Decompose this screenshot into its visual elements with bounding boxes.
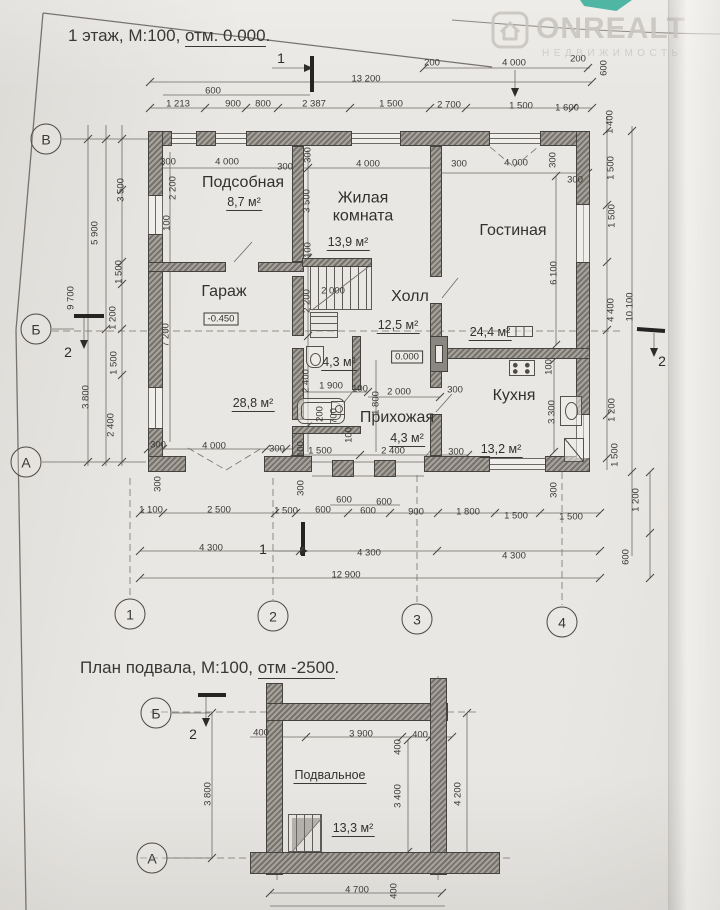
dim-label: 1 500 (379, 99, 403, 110)
window (352, 133, 400, 144)
dim-label: 600 (621, 549, 632, 565)
dim-label: 3 900 (349, 729, 373, 740)
dim-label: 2 200 (302, 289, 313, 313)
dim-label: 4 300 (199, 543, 223, 554)
window (216, 133, 246, 144)
basement-elevation-underlined: отм -2500 (258, 658, 335, 679)
wall-segment (148, 262, 226, 272)
dim-label: 600 (205, 86, 221, 97)
dim-label: 100 (303, 242, 314, 258)
dim-label: 4 000 (215, 157, 239, 168)
dim-label: 2 387 (302, 99, 326, 110)
dim-label: 1 800 (456, 507, 480, 518)
grid-column-circle: 3 (402, 604, 433, 635)
dim-label: 3 800 (81, 385, 92, 409)
wall-segment (302, 258, 372, 267)
dim-label: 2 000 (387, 387, 411, 398)
dim-label: 300 (448, 447, 464, 458)
wall-segment (374, 460, 396, 477)
wall-segment (246, 131, 352, 146)
room-area-label: 4,3 м² (321, 355, 357, 371)
dim-label: 1 200 (108, 306, 119, 330)
room-area-label: 4,3 м² (389, 431, 425, 447)
dim-label: 200 (315, 406, 326, 422)
dim-label: 300 (150, 440, 166, 451)
dim-label: 9 700 (66, 286, 77, 310)
section-mark-label: 1 (277, 50, 285, 66)
dim-label: 1 600 (555, 103, 579, 114)
dim-label: 200 (424, 58, 440, 69)
window (490, 458, 545, 470)
dim-label: 4 300 (502, 551, 526, 562)
dim-label: 1 500 (114, 260, 125, 284)
dim-label: 3 500 (302, 189, 313, 213)
dim-label: 10 100 (625, 292, 636, 321)
grid-axis-circle: В (31, 124, 62, 155)
floor1-elevation-underlined: отм. 0.000 (185, 26, 266, 47)
grid-column-circle: 2 (258, 601, 289, 632)
room-label: Подсобная (202, 174, 284, 192)
window (576, 205, 590, 262)
dim-label: 200 (570, 54, 586, 65)
dim-label: 100 (544, 359, 555, 375)
dim-label: 300 (303, 147, 314, 163)
chimney-flue-icon (430, 336, 448, 372)
wall-segment (424, 456, 490, 472)
room-area-label: 12,5 м² (377, 318, 420, 334)
dim-label: 1 500 (504, 511, 528, 522)
dim-label: 6 100 (549, 261, 560, 285)
wall-segment (400, 131, 490, 146)
grid-axis-circle: Б (21, 314, 52, 345)
dim-label: 400 (253, 728, 269, 739)
dim-label: 100 (344, 427, 355, 443)
grid-column-circle: 4 (547, 607, 578, 638)
wall-segment (332, 460, 354, 477)
dim-label: 1 900 (319, 381, 343, 392)
section-mark-label: 2 (189, 726, 197, 742)
dim-label: 7 200 (161, 323, 172, 347)
wall-segment (576, 131, 590, 205)
wall-segment (430, 146, 442, 277)
dim-label: 2 500 (207, 505, 231, 516)
room-label: Прихожая (360, 409, 434, 427)
grid-axis-circle: А (137, 843, 168, 874)
fridge-icon (564, 438, 584, 462)
dim-label: 300 (447, 385, 463, 396)
dim-label: 1 500 (559, 512, 583, 523)
window (148, 388, 163, 428)
dim-label: 100 (352, 384, 368, 395)
dim-label: 2 400 (301, 369, 312, 393)
dim-label: 1 500 (274, 506, 298, 517)
basement-title-text: План подвала, М:100, (80, 658, 258, 677)
dim-label: 1 400 (605, 110, 616, 134)
dim-label: 1 200 (631, 488, 642, 512)
dim-label: 1 100 (139, 505, 163, 516)
dim-label: 300 (160, 157, 176, 168)
dim-label: 4 300 (357, 548, 381, 559)
dim-label: 1 500 (610, 443, 621, 467)
wall-segment (430, 678, 447, 875)
dim-label: 4 000 (202, 441, 226, 452)
dim-label: 5 900 (90, 221, 101, 245)
room-area-label: Подвальное (293, 768, 366, 784)
dim-label: 1 500 (509, 101, 533, 112)
wall-segment (250, 852, 500, 874)
dim-label: 3 500 (116, 178, 127, 202)
dim-label: 4 000 (504, 158, 528, 169)
dim-label: 300 (451, 159, 467, 170)
wall-segment (148, 456, 186, 472)
dim-label: 3 800 (203, 782, 214, 806)
dim-label: 600 (376, 497, 392, 508)
dim-label: 3 400 (393, 784, 404, 808)
kitchen-sink-icon (560, 396, 582, 426)
wall-segment (196, 131, 216, 146)
dim-label: 2 000 (321, 286, 345, 297)
dim-label: 1 500 (109, 351, 120, 375)
window (172, 133, 196, 144)
window (490, 133, 540, 144)
dim-label: 4 000 (502, 58, 526, 69)
floor1-title: 1 этаж, М:100, отм. 0.000. (68, 26, 270, 46)
wall-segment (442, 348, 590, 359)
grid-axis-circle: А (11, 447, 42, 478)
dim-label: 2 200 (168, 176, 179, 200)
dim-label: 600 (315, 505, 331, 516)
section-mark-label: 1 (259, 541, 267, 557)
dim-label: 4 200 (453, 782, 464, 806)
dim-label: 300 (277, 162, 293, 173)
room-label: Жилая комната (314, 189, 412, 224)
dim-label: 100 (296, 441, 307, 457)
room-label: Кухня (493, 387, 536, 405)
dim-label: 400 (393, 739, 404, 755)
dim-label: 12 900 (331, 570, 360, 581)
section-mark-label: 2 (658, 353, 666, 369)
dim-label: 900 (408, 507, 424, 518)
dim-label: 300 (269, 444, 285, 455)
scanned-floorplan-photo: 2004 00020060013 2006001 2139008002 3871… (0, 0, 720, 910)
dim-label: 800 (255, 99, 271, 110)
room-label: Холл (391, 288, 429, 306)
dim-label: 1 500 (607, 204, 618, 228)
dim-label: 400 (389, 883, 400, 899)
dim-label: 4 700 (345, 885, 369, 896)
wall-segment (264, 456, 312, 472)
dim-label: 4 000 (356, 159, 380, 170)
room-label: Гостиная (479, 222, 546, 240)
dim-label: 700 (329, 408, 340, 424)
dim-label: 2 400 (106, 413, 117, 437)
elevation-label: -0.450 (204, 313, 239, 326)
wall-segment (576, 262, 590, 415)
section-mark-label: 2 (64, 344, 72, 360)
wall-segment (148, 234, 163, 388)
room-area-label: 13,2 м² (480, 442, 523, 458)
floor1-title-text: 1 этаж, М:100, (68, 26, 185, 45)
dim-label: 300 (548, 152, 559, 168)
room-area-label: 28,8 м² (232, 396, 275, 412)
grid-axis-circle: Б (141, 698, 172, 729)
dim-label: 100 (162, 215, 173, 231)
room-area-label: 8,7 м² (226, 195, 262, 211)
room-area-label: 13,9 м² (327, 235, 370, 251)
dim-label: 4 400 (606, 298, 617, 322)
stove-icon (509, 360, 535, 376)
dim-label: 300 (549, 482, 560, 498)
dim-label: 1 213 (166, 99, 190, 110)
dim-label: 300 (153, 476, 164, 492)
dim-label: 3 300 (547, 400, 558, 424)
dim-label: 2 700 (437, 100, 461, 111)
dim-label: 400 (412, 730, 428, 741)
dim-label: 300 (296, 480, 307, 496)
wall-segment (266, 703, 448, 721)
wall-segment (258, 262, 304, 272)
basement-title: План подвала, М:100, отм -2500. (80, 658, 339, 678)
room-area-label: 24,4 м² (469, 325, 512, 341)
dim-label: 600 (599, 60, 610, 76)
dim-label: 1 200 (607, 398, 618, 422)
dim-label: 1 500 (606, 156, 617, 180)
dim-label: 600 (336, 495, 352, 506)
dim-label: 600 (360, 506, 376, 517)
dim-label: 1 500 (308, 446, 332, 457)
grid-column-circle: 1 (115, 599, 146, 630)
elevation-label: 0.000 (391, 351, 423, 364)
room-label: Гараж (201, 283, 246, 301)
room-area-label: 13,3 м² (332, 821, 375, 837)
dim-label: 300 (567, 175, 583, 186)
dim-label: 900 (225, 99, 241, 110)
dim-label: 2 400 (381, 446, 405, 457)
dim-label: 13 200 (351, 74, 380, 85)
